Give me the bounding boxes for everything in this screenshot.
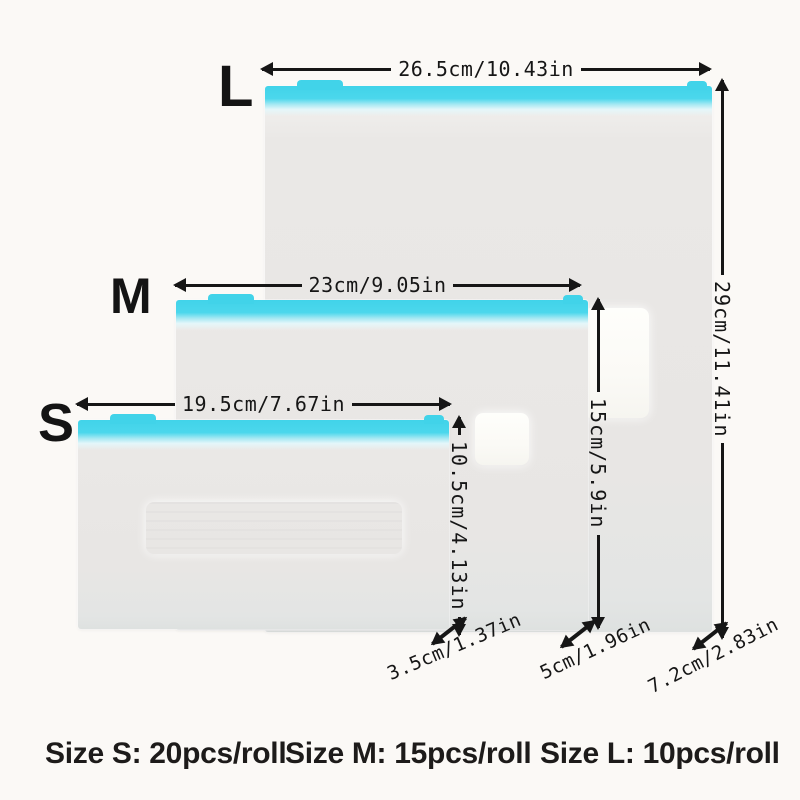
size-letter-m: M: [110, 271, 151, 321]
dim-width-s: 19.5cm/7.67in: [77, 392, 450, 416]
zipper-slider-icon: [297, 80, 343, 90]
dim-height-s: 10.5cm/4.13in: [445, 417, 473, 628]
arrow-left-icon: [175, 284, 302, 287]
dim-width-s-value: 19.5cm/7.67in: [175, 392, 352, 416]
zipper-bar-m: [176, 300, 588, 330]
bag-label-patch-m: [475, 413, 529, 465]
bag-size-s: [78, 420, 449, 629]
arrow-right-icon: [581, 68, 710, 71]
zipper-bar-l: [265, 86, 712, 116]
zipper-end-tab: [687, 81, 707, 90]
dim-height-l: 29cm/11.41in: [708, 80, 736, 638]
dim-height-s-value: 10.5cm/4.13in: [447, 435, 471, 617]
footer-size-m-pcs: Size M: 15pcs/roll: [285, 737, 531, 771]
dim-width-m: 23cm/9.05in: [175, 273, 580, 297]
arrow-right-icon: [352, 403, 450, 406]
dim-width-m-value: 23cm/9.05in: [302, 273, 454, 297]
zipper-end-tab: [424, 415, 444, 424]
zipper-bar-s: [78, 420, 449, 450]
dim-height-m: 15cm/5.9in: [584, 299, 612, 628]
arrow-down-icon: [721, 443, 724, 638]
dim-width-l: 26.5cm/10.43in: [262, 57, 710, 81]
arrow-right-icon: [453, 284, 580, 287]
arrow-left-icon: [262, 68, 391, 71]
arrow-left-icon: [77, 403, 175, 406]
arrow-up-icon: [597, 299, 600, 392]
size-letter-s: S: [38, 396, 73, 450]
bag-label-patch-s: [146, 502, 402, 554]
dim-height-l-value: 29cm/11.41in: [710, 275, 734, 444]
arrow-up-icon: [458, 417, 461, 435]
footer-size-s-pcs: Size S: 20pcs/roll: [45, 737, 286, 771]
footer-size-l-pcs: Size L: 10pcs/roll: [540, 737, 780, 771]
size-letter-l: L: [218, 58, 252, 116]
dim-height-m-value: 15cm/5.9in: [586, 392, 610, 534]
arrow-up-icon: [721, 80, 724, 275]
arrow-down-icon: [597, 535, 600, 628]
dim-width-l-value: 26.5cm/10.43in: [391, 57, 581, 81]
